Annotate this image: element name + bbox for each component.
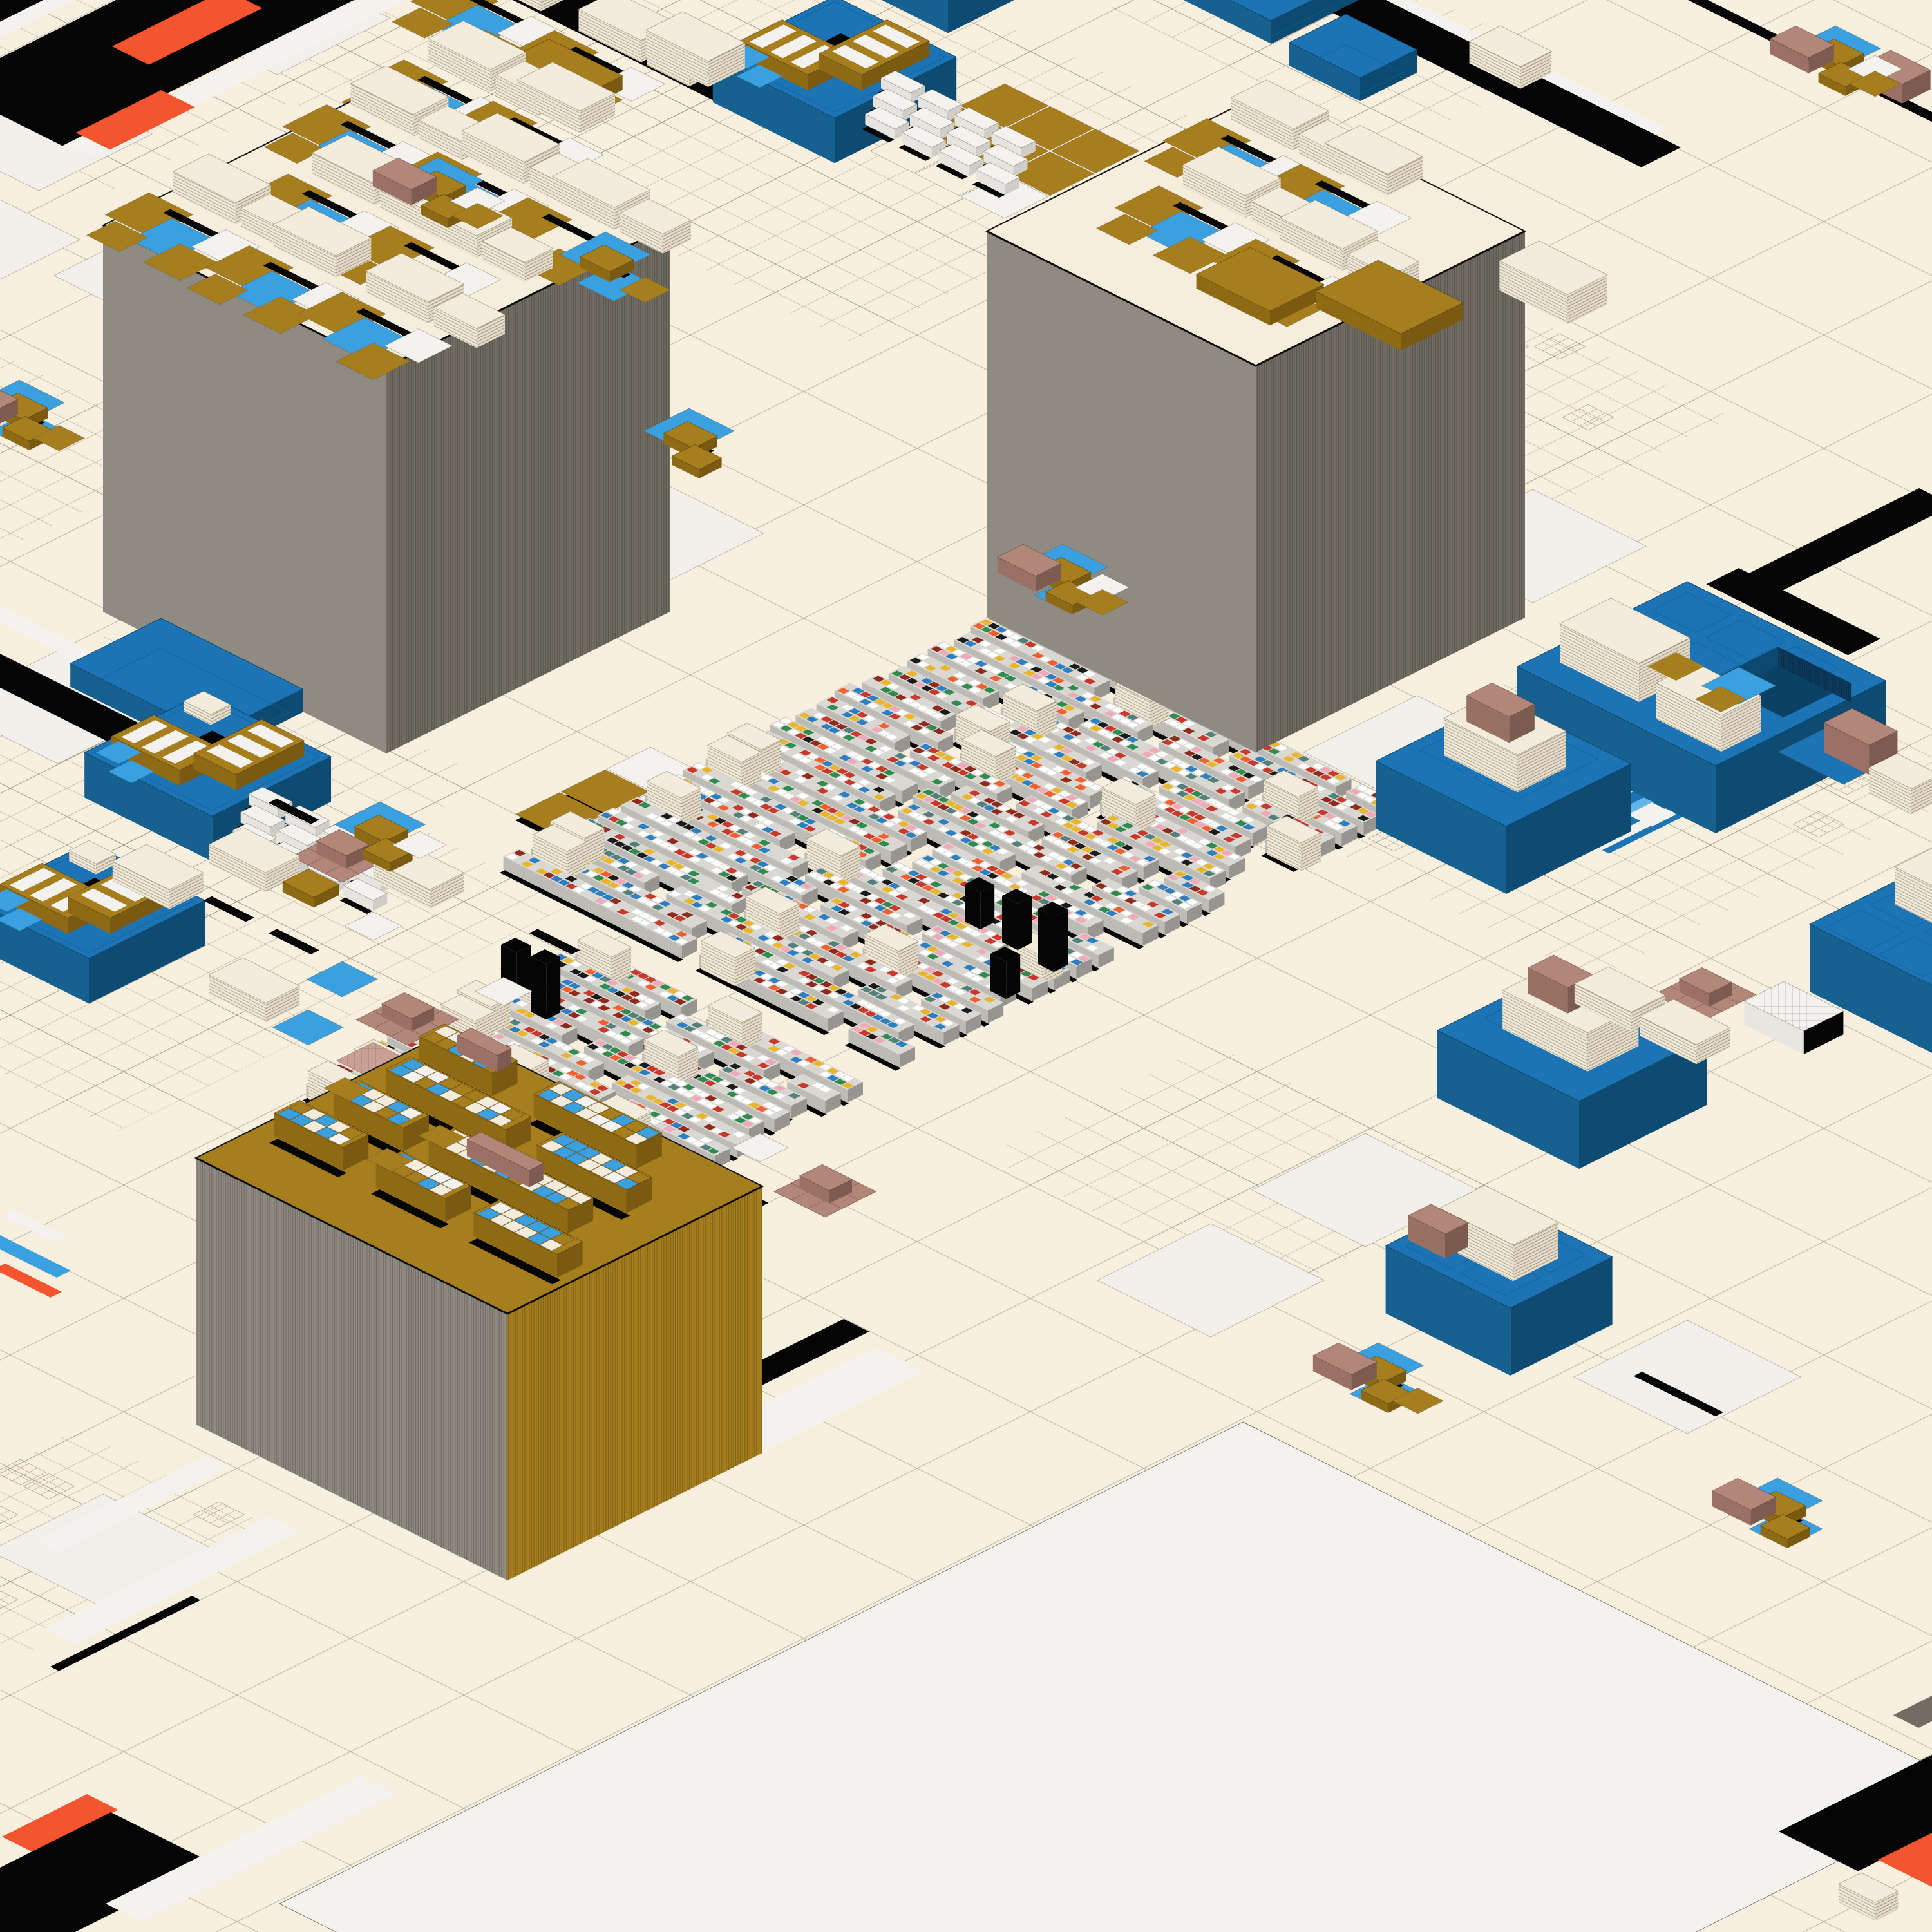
scene-canvas	[0, 0, 1932, 1932]
isometric-warehouse-artwork	[0, 0, 1932, 1932]
